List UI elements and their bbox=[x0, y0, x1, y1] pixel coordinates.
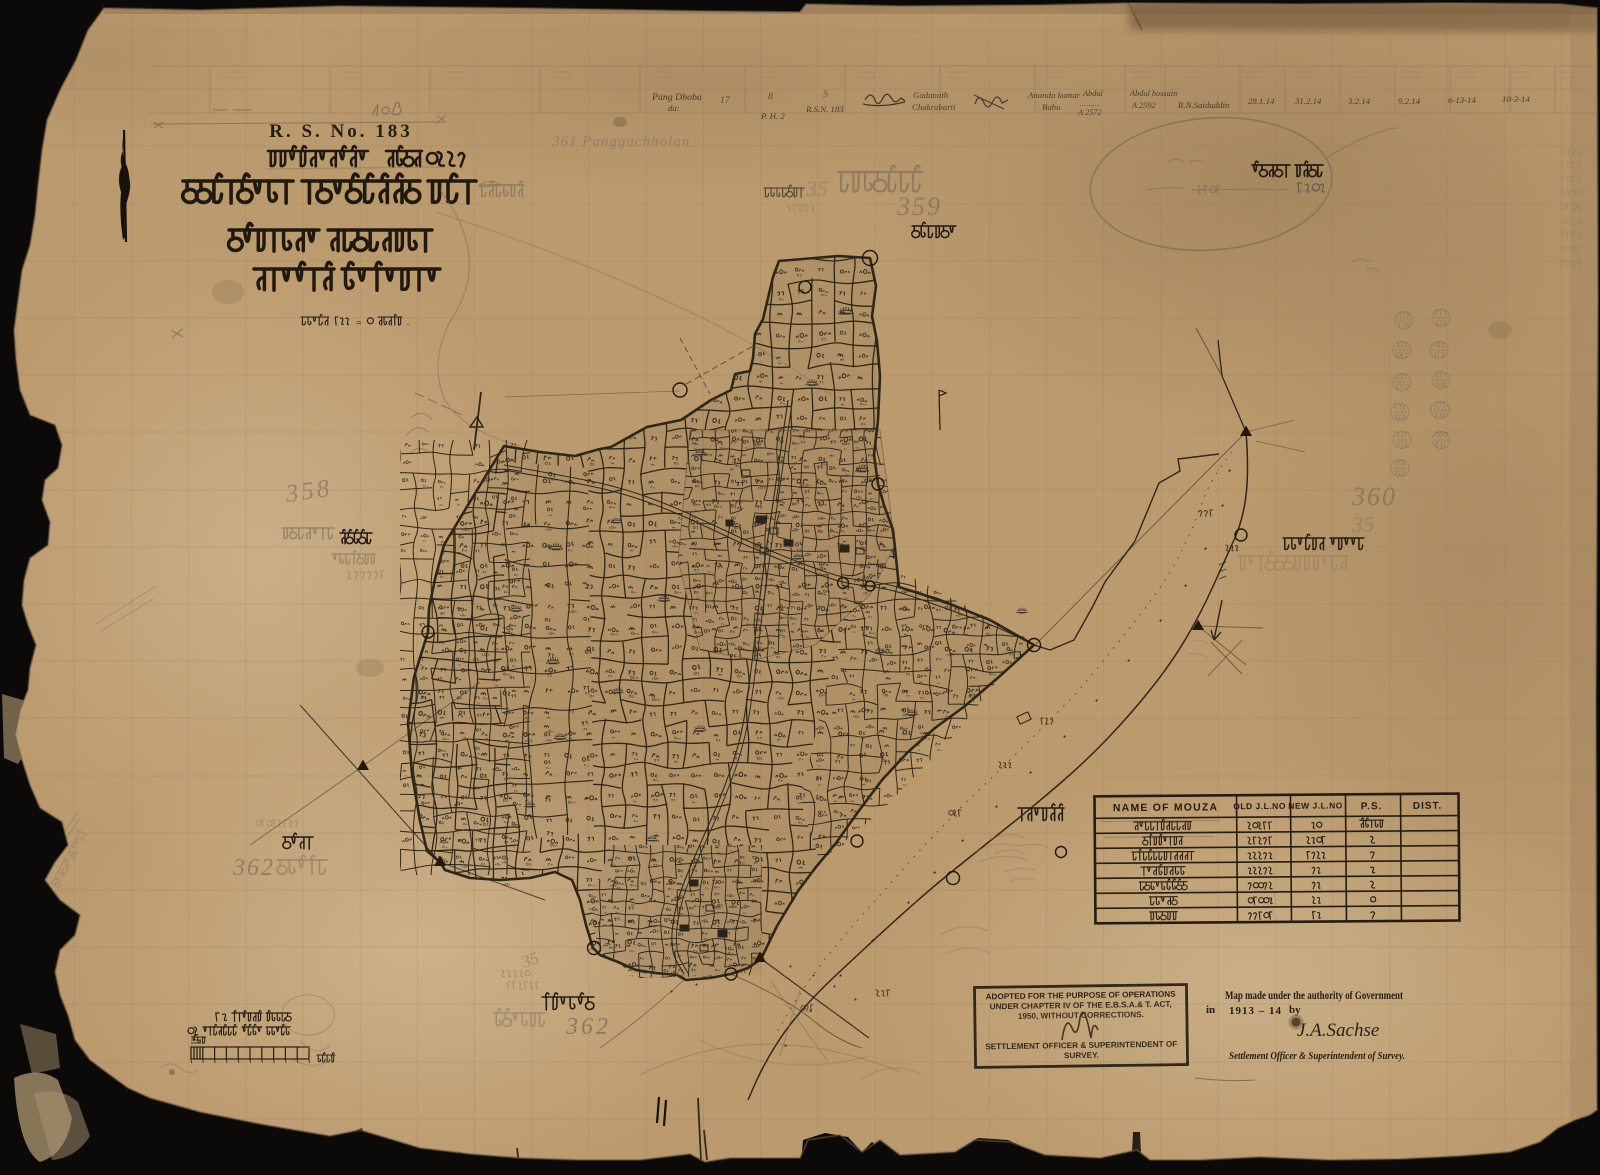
svg-text:361 Panggachholan: 361 Panggachholan bbox=[551, 134, 690, 150]
svg-text:A 2572: A 2572 bbox=[1077, 108, 1102, 117]
svg-text:8: 8 bbox=[768, 91, 773, 102]
svg-text:Gadanath: Gadanath bbox=[913, 90, 949, 100]
svg-text:R.N.Saiduddin: R.N.Saiduddin bbox=[1177, 100, 1230, 110]
svg-text:17: 17 bbox=[720, 95, 731, 106]
svg-text:362: 362 bbox=[232, 855, 275, 881]
svg-text:SURVEY.: SURVEY. bbox=[1064, 1051, 1099, 1060]
svg-text:10-3-14: 10-3-14 bbox=[1502, 94, 1530, 104]
svg-text:R. S. No. 183: R. S. No. 183 bbox=[269, 121, 413, 142]
svg-text:9.2.14: 9.2.14 bbox=[1398, 96, 1421, 106]
svg-text:3.2.14: 3.2.14 bbox=[1347, 96, 1371, 106]
svg-text:NAME OF MOUZA: NAME OF MOUZA bbox=[1113, 801, 1219, 814]
svg-text:P.S.: P.S. bbox=[1361, 801, 1383, 812]
svg-text:OLD J.L.NO: OLD J.L.NO bbox=[1233, 801, 1286, 811]
svg-text:Pang Dhoba: Pang Dhoba bbox=[651, 92, 702, 103]
svg-text:31.2.14: 31.2.14 bbox=[1294, 96, 1322, 106]
svg-text:by: by bbox=[1289, 1004, 1301, 1016]
svg-text:360: 360 bbox=[1351, 482, 1397, 511]
svg-text:Abdul hossain: Abdul hossain bbox=[1129, 89, 1177, 98]
svg-text:Ananda kumar: Ananda kumar bbox=[1027, 90, 1081, 100]
svg-text:28.1.14: 28.1.14 bbox=[1248, 96, 1275, 106]
svg-text:Babu: Babu bbox=[1042, 102, 1061, 112]
svg-text:359: 359 bbox=[896, 192, 942, 221]
svg-text:P. H. 2: P. H. 2 bbox=[760, 111, 785, 121]
svg-text:da:: da: bbox=[668, 103, 680, 113]
svg-text:Chakrabarti: Chakrabarti bbox=[912, 102, 956, 112]
svg-text:in: in bbox=[1206, 1004, 1215, 1016]
svg-text:NEW J.L.NO: NEW J.L.NO bbox=[1288, 800, 1343, 810]
svg-text:...........: ........... bbox=[1080, 99, 1100, 108]
svg-text:1913 – 14: 1913 – 14 bbox=[1229, 1005, 1282, 1017]
svg-text:=: = bbox=[356, 318, 362, 329]
svg-text:5: 5 bbox=[823, 89, 828, 100]
svg-text:362: 362 bbox=[565, 1014, 611, 1040]
svg-text:6-13-14: 6-13-14 bbox=[1448, 95, 1476, 105]
svg-text:35: 35 bbox=[805, 176, 828, 201]
svg-text:Abdul: Abdul bbox=[1082, 89, 1104, 98]
svg-text:Settlement Officer & Superinte: Settlement Officer & Superintendent of S… bbox=[1229, 1050, 1405, 1062]
svg-text:DIST.: DIST. bbox=[1413, 801, 1443, 812]
svg-text:35: 35 bbox=[1351, 512, 1374, 537]
svg-text:Map made under the authority o: Map made under the authority of Governme… bbox=[1225, 990, 1403, 1002]
svg-text:R.S.N. 183: R.S.N. 183 bbox=[805, 104, 844, 114]
svg-text:.: . bbox=[407, 317, 409, 327]
svg-text:J.A.Sachse: J.A.Sachse bbox=[1297, 1020, 1379, 1041]
svg-text:A 2592: A 2592 bbox=[1131, 101, 1156, 110]
